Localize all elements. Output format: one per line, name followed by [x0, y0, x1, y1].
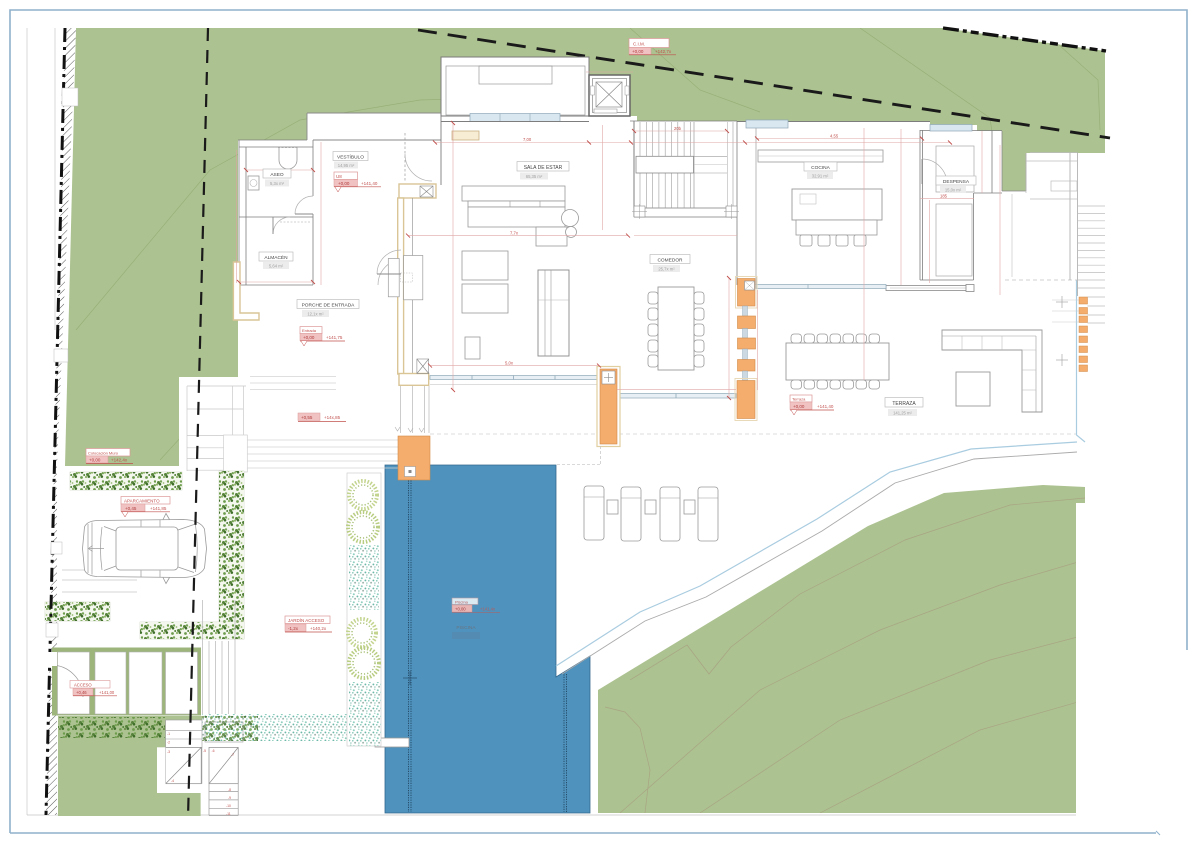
svg-text:-1: -1 — [167, 732, 170, 736]
svg-text:+0,55: +0,55 — [301, 415, 313, 420]
svg-text:+0,00: +0,00 — [303, 335, 315, 340]
svg-text:7,7x: 7,7x — [510, 231, 519, 236]
svg-text:32,91 m²: 32,91 m² — [812, 174, 829, 179]
svg-text:+141,40: +141,40 — [817, 404, 834, 409]
svg-text:65,35 m²: 65,35 m² — [526, 174, 543, 179]
svg-text:-4: -4 — [171, 779, 174, 783]
svg-text:5,0x: 5,0x — [505, 361, 514, 366]
svg-text:ACCESO: ACCESO — [74, 683, 92, 688]
svg-text:-7: -7 — [231, 753, 234, 757]
svg-text:+140,2x: +140,2x — [310, 626, 327, 631]
svg-text:185: 185 — [940, 194, 948, 199]
svg-text:+141,75: +141,75 — [326, 335, 343, 340]
svg-text:-6: -6 — [212, 749, 215, 753]
svg-text:-3: -3 — [167, 750, 170, 754]
svg-text:+0,00: +0,00 — [632, 49, 644, 54]
svg-text:+0,46: +0,46 — [76, 690, 87, 695]
svg-text:+0,00: +0,00 — [793, 404, 805, 409]
svg-text:141,25 m²: 141,25 m² — [893, 411, 912, 416]
svg-text:+142,7x: +142,7x — [655, 49, 672, 54]
svg-text:-9: -9 — [228, 796, 231, 800]
svg-text:TERRAZA: TERRAZA — [892, 401, 916, 407]
svg-text:Piscina: Piscina — [455, 600, 469, 605]
svg-text:Entrada: Entrada — [302, 328, 317, 333]
svg-text:+0,00: +0,00 — [89, 458, 101, 463]
svg-text:14,95 m²: 14,95 m² — [338, 163, 355, 168]
svg-text:COMEDOR: COMEDOR — [657, 258, 683, 264]
svg-text:-1,2x: -1,2x — [288, 626, 299, 631]
svg-text:Terraza: Terraza — [792, 397, 806, 402]
svg-text:-10: -10 — [226, 804, 231, 808]
svg-text:ASEO: ASEO — [270, 172, 284, 178]
svg-text:7,00: 7,00 — [523, 137, 532, 142]
svg-text:25,7x m²: 25,7x m² — [658, 267, 675, 272]
svg-text:-2: -2 — [167, 741, 170, 745]
svg-text:-5: -5 — [203, 749, 206, 753]
svg-text:+141,40: +141,40 — [361, 181, 378, 186]
svg-text:COCINA: COCINA — [811, 165, 830, 171]
svg-text:+142,4x: +142,4x — [111, 458, 128, 463]
svg-text:DESPENSA: DESPENSA — [943, 179, 970, 185]
svg-text:12,1x m²: 12,1x m² — [307, 312, 324, 317]
svg-text:+141,4x: +141,4x — [480, 607, 496, 612]
svg-text:+0,00: +0,00 — [455, 607, 466, 612]
svg-text:20b: 20b — [674, 126, 682, 131]
svg-text:+14x,85: +14x,85 — [324, 415, 341, 420]
svg-text:15,0x m²: 15,0x m² — [945, 188, 962, 193]
svg-text:SALA DE ESTAR: SALA DE ESTAR — [524, 165, 563, 171]
svg-text:+0,00: +0,00 — [338, 181, 350, 186]
svg-text:U8: U8 — [336, 174, 342, 179]
svg-text:Colocación Muro: Colocación Muro — [88, 451, 119, 456]
svg-text:+0,45: +0,45 — [125, 506, 137, 511]
svg-text:VESTÍBULO: VESTÍBULO — [337, 154, 364, 161]
svg-text:ALMACÉN: ALMACÉN — [264, 254, 288, 261]
svg-text:+141,00: +141,00 — [99, 690, 115, 695]
svg-text:APARCAMIENTO: APARCAMIENTO — [124, 499, 160, 504]
svg-text:+141,85: +141,85 — [150, 506, 167, 511]
svg-text:JARDÍN ACCESO: JARDÍN ACCESO — [288, 617, 325, 623]
svg-text:4,55: 4,55 — [830, 134, 839, 139]
svg-text:C.I.M.: C.I.M. — [633, 42, 645, 47]
svg-text:5,64 m²: 5,64 m² — [269, 264, 284, 269]
svg-text:5,3x m²: 5,3x m² — [270, 181, 285, 186]
svg-text:PORCHE DE ENTRADA: PORCHE DE ENTRADA — [302, 303, 356, 309]
svg-text:PISCINA: PISCINA — [456, 625, 476, 631]
